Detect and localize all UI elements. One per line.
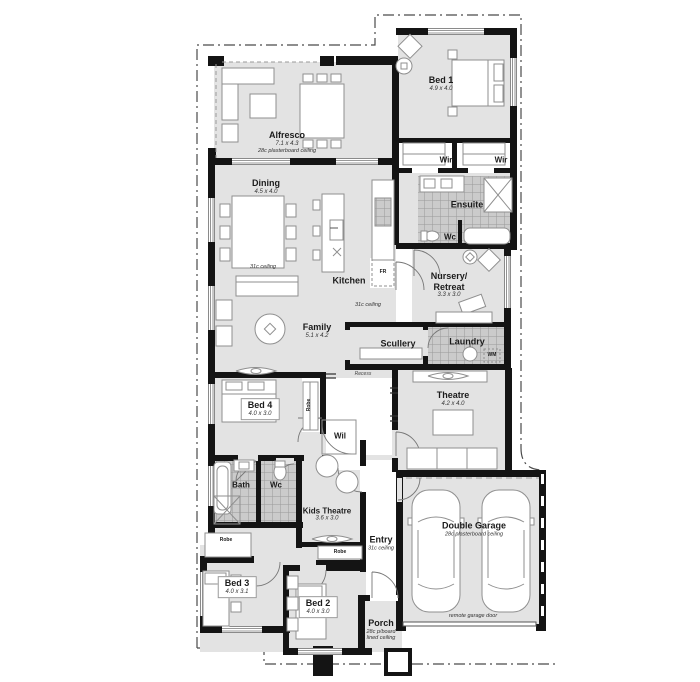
porch-pier xyxy=(386,650,410,674)
room-label-bath: Bath xyxy=(232,480,250,489)
floor-plan-drawing xyxy=(0,0,700,682)
room-label-wir-right: Wir xyxy=(495,155,508,164)
room-label-kitchen: Kitchen xyxy=(332,276,365,287)
room-label-laundry: Laundry xyxy=(449,337,485,348)
room-label-theatre: Theatre 4.2 x 4.0 xyxy=(437,390,470,408)
room-label-kids-theatre: Kids Theatre 3.6 x 3.0 xyxy=(303,507,351,524)
room-label-ensuite: Ensuite xyxy=(451,200,484,211)
washing-machine-label: WM xyxy=(488,353,497,359)
alfresco-dims: 7.1 x 4.3 xyxy=(258,141,316,148)
alfresco-name: Alfresco xyxy=(258,130,316,141)
fridge-label: FR xyxy=(380,270,387,276)
robe-label-bed4: Robe xyxy=(307,399,313,412)
room-label-wil: Wil xyxy=(334,431,346,440)
room-label-bed2: Bed 2 4.0 x 3.0 xyxy=(299,596,338,618)
robe-label-hall: Robe xyxy=(220,538,233,544)
room-label-scullery: Scullery xyxy=(380,339,415,350)
room-label-porch: Porch 28c p/board lined ceiling xyxy=(366,618,395,642)
ceiling-note-dining: 31c ceiling xyxy=(250,264,276,270)
room-label-family: Family 5.1 x 4.2 xyxy=(303,322,332,340)
room-label-bed1: Bed 1 4.9 x 4.0 xyxy=(429,75,454,93)
recess-label: Recess xyxy=(355,372,372,378)
room-label-wir-left: Wir xyxy=(440,155,453,164)
floor-plan: Alfresco 7.1 x 4.3 28c plasterboard ceil… xyxy=(0,0,700,682)
room-label-entry: Entry 31c ceiling xyxy=(368,534,394,551)
room-label-wc: Wc xyxy=(270,480,282,489)
room-label-alfresco: Alfresco 7.1 x 4.3 28c plasterboard ceil… xyxy=(258,130,316,154)
room-label-nursery: Nursery/ Retreat 3.3 x 3.0 xyxy=(431,271,468,299)
room-label-dining: Dining 4.5 x 4.0 xyxy=(252,178,280,196)
room-label-garage: Double Garage 28c plasterboard ceiling xyxy=(442,520,506,537)
alfresco-ceiling-note: 28c plasterboard ceiling xyxy=(258,148,316,154)
room-label-bed4: Bed 4 4.0 x 3.0 xyxy=(241,398,280,420)
ceiling-note-family: 31c ceiling xyxy=(355,302,381,308)
scullery-furniture xyxy=(360,348,422,359)
robe-label-kids: Robe xyxy=(334,550,347,556)
garage-door-note: remote garage door xyxy=(449,613,497,619)
room-label-ensuite-wc: Wc xyxy=(444,232,456,241)
room-label-bed3: Bed 3 4.0 x 3.1 xyxy=(218,576,257,598)
